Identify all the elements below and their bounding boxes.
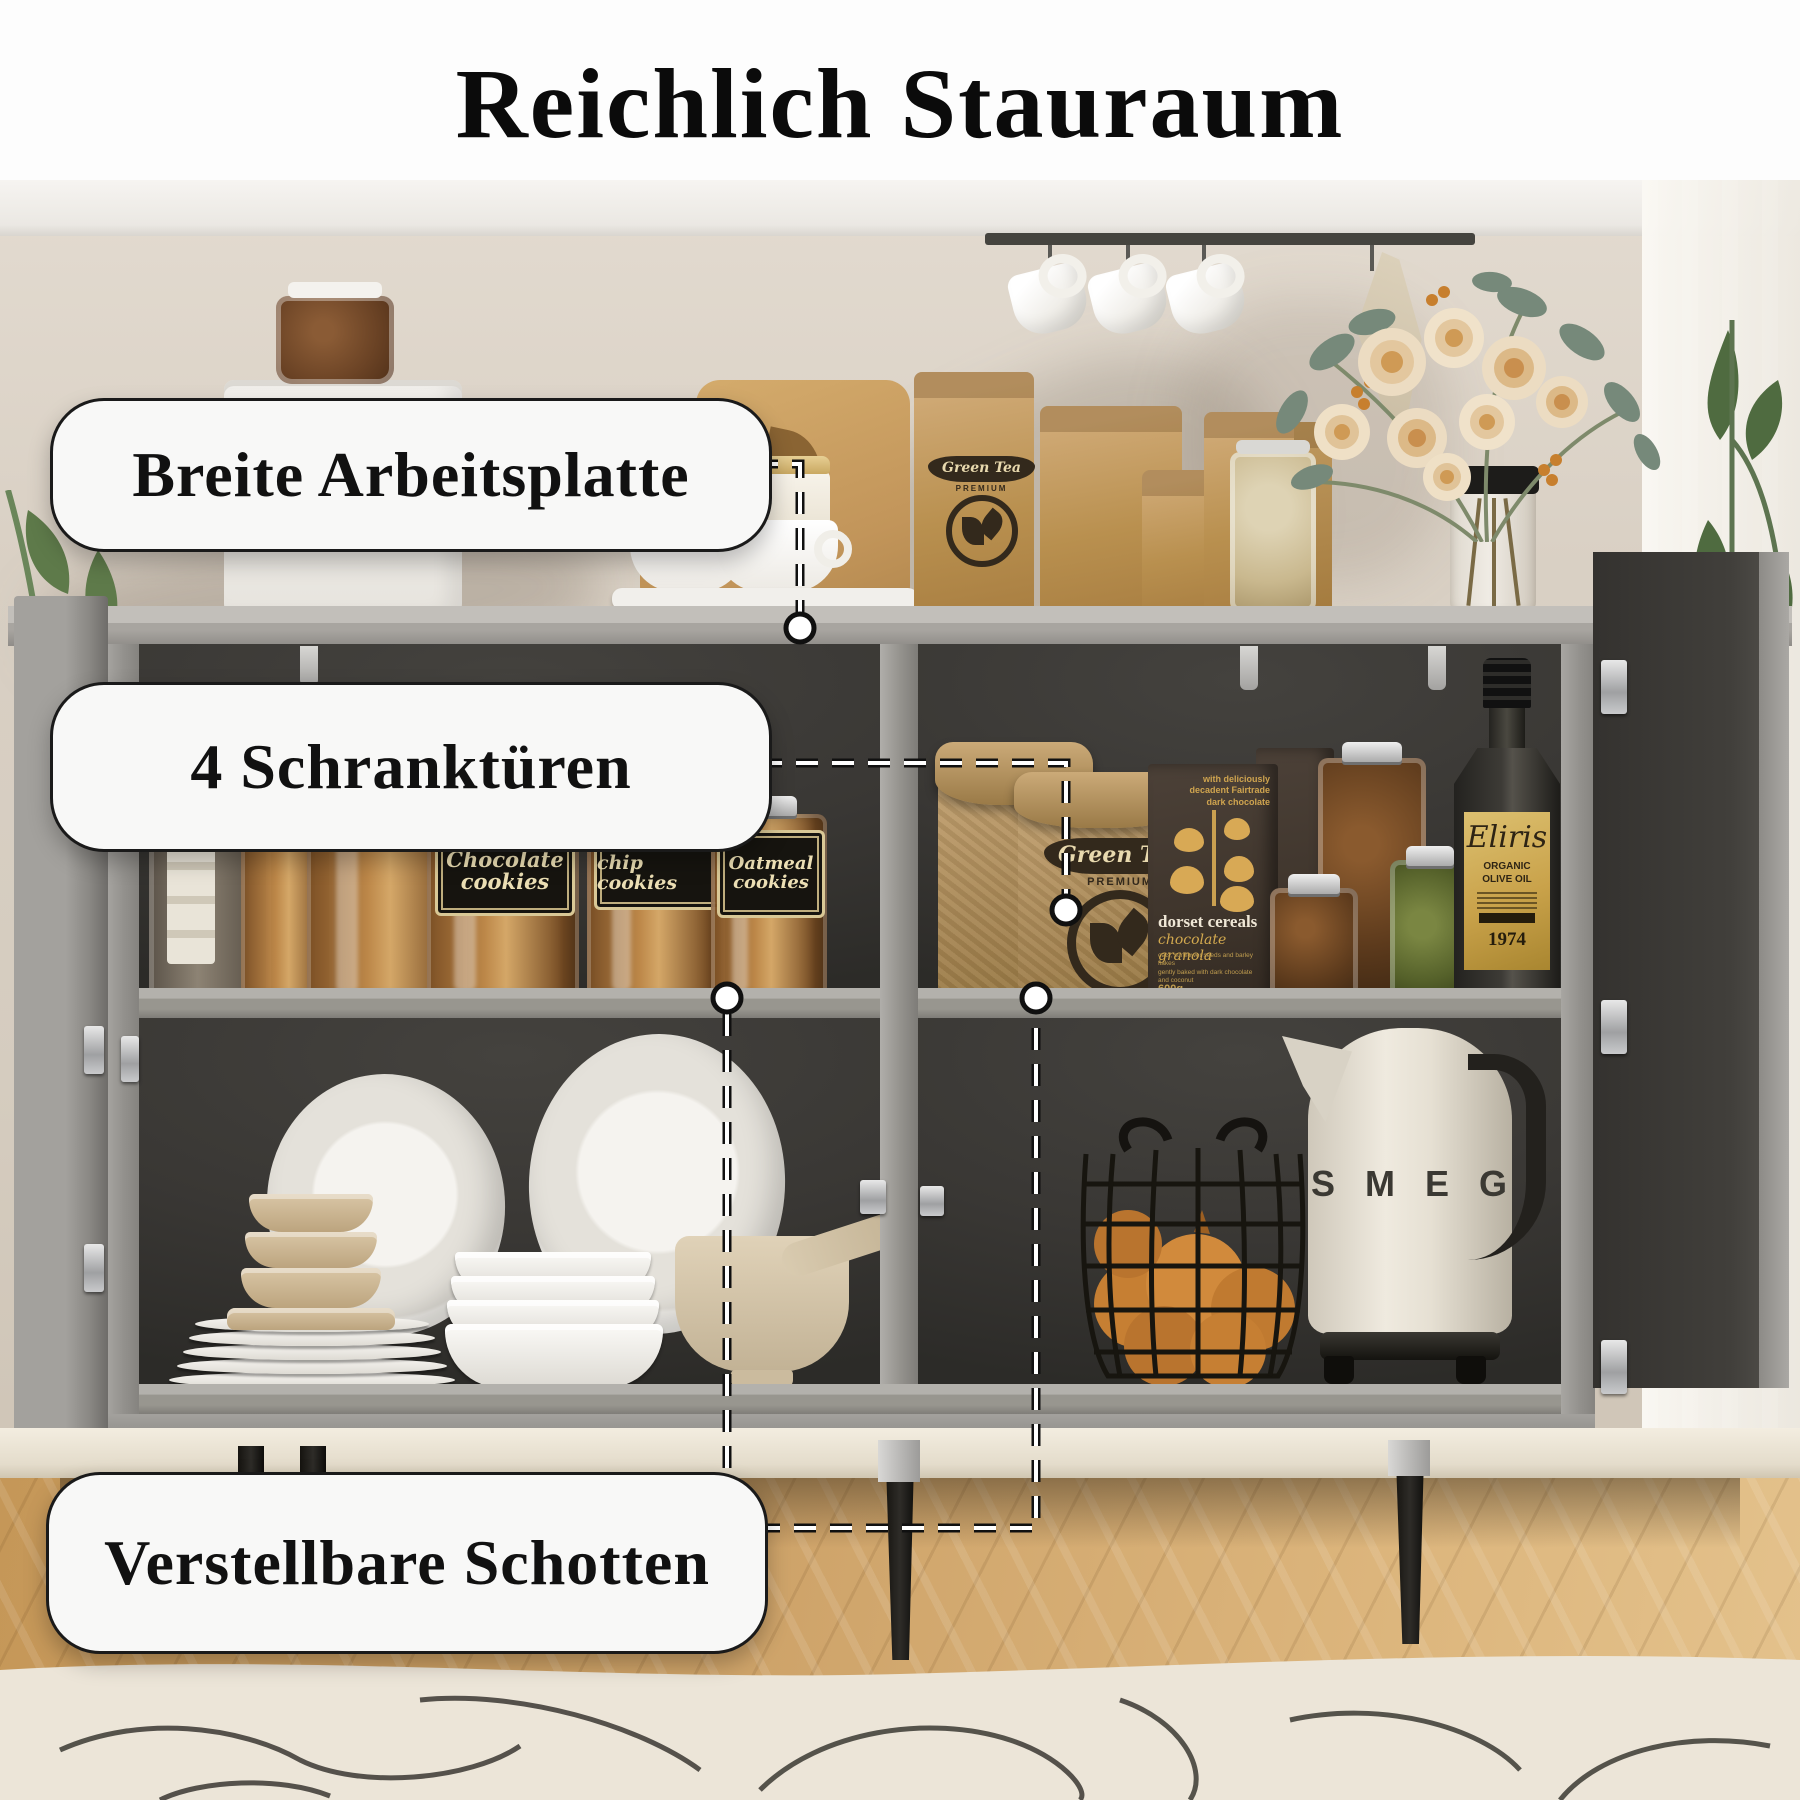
bag-fold	[1040, 406, 1182, 432]
green-tea-logo: Green Tea PREMIUM	[928, 456, 1035, 567]
tea-pouch: Green Tea PREMIUM	[914, 372, 1034, 612]
product-image: Reichlich Stauraum G	[0, 0, 1800, 1800]
upper-cabinet-band	[0, 180, 1800, 236]
tea-leaf-icon	[962, 517, 984, 545]
cereal-box-front: with deliciously decadent Fairtrade dark…	[1148, 764, 1278, 1004]
granola-stem	[1212, 810, 1216, 906]
olive-year: 1974	[1488, 929, 1526, 951]
cabinet-right-stile	[1561, 644, 1595, 1414]
jar-label-line2: chip cookies	[597, 854, 721, 894]
door-hinge	[84, 1026, 104, 1074]
cereal-brand: dorset cereals	[1158, 912, 1257, 932]
jar-label-line2: cookies	[461, 871, 550, 893]
door-hinge	[860, 1180, 886, 1214]
tea-grade: PREMIUM	[956, 484, 1008, 493]
jar-lid	[1406, 846, 1454, 866]
cereal-claim: with deliciously decadent Fairtrade dark…	[1189, 774, 1270, 808]
jar-lid	[1288, 874, 1340, 894]
jar-lid	[1342, 742, 1402, 762]
olive-type-line: OLIVE OIL	[1482, 874, 1531, 887]
compartment-upper-right: Green Tea PREMIUM with deliciously decad…	[918, 644, 1561, 1004]
door-hinge	[84, 1244, 104, 1292]
door-hinge	[1601, 660, 1627, 714]
door-hinge	[121, 1036, 139, 1082]
pouch-fold	[914, 372, 1034, 398]
compartment-lower-right: SMEG	[918, 1018, 1561, 1390]
bottle-neck	[1489, 708, 1525, 752]
annotation-worktop: Breite Arbeitsplatte	[50, 398, 772, 552]
middle-shelf	[139, 988, 1561, 1018]
oat-cluster	[1224, 818, 1250, 840]
olive-band	[1479, 913, 1535, 923]
cabinet-leg-sleeve	[878, 1440, 920, 1482]
almond-jar-small	[1270, 888, 1358, 1004]
shelf-bracket	[1428, 646, 1446, 690]
beige-plate	[227, 1308, 395, 1330]
oat-cluster	[1224, 856, 1254, 882]
olive-oil-bottle: Eliris ORGANIC OLIVE OIL 1974	[1452, 652, 1561, 1004]
door-hinge	[1601, 1000, 1627, 1054]
annotation-shelves-text: Verstellbare Schotten	[104, 1526, 710, 1600]
cabinet-leg-sleeve	[1388, 1440, 1430, 1476]
cereal-claim-line: with deliciously	[1189, 774, 1270, 785]
stacked-plate	[189, 1330, 435, 1346]
door-hinge	[1601, 1340, 1627, 1394]
compartment-lower-left	[139, 1018, 880, 1390]
shelf-bracket	[300, 646, 318, 686]
tea-grade: PREMIUM	[1087, 876, 1153, 888]
kettle-foot	[1324, 1356, 1354, 1384]
annotation-shelves: Verstellbare Schotten	[46, 1472, 768, 1654]
beige-bowl	[249, 1194, 373, 1232]
flower-bouquet	[1192, 242, 1692, 542]
cabinet-bottom-shelf	[139, 1384, 1561, 1414]
open-door-right	[1593, 552, 1789, 1388]
coffee-bean-jar	[276, 296, 394, 384]
beige-bowl	[241, 1268, 381, 1308]
tea-ribbon: Green Tea	[928, 456, 1035, 482]
tea-brand: Green Tea	[942, 460, 1021, 476]
kettle-handle	[1468, 1054, 1546, 1260]
door-hinge	[920, 1186, 944, 1216]
cereal-desc-line: gently baked with dark chocolate	[1158, 969, 1270, 977]
olive-oil-label: Eliris ORGANIC OLIVE OIL 1974	[1464, 812, 1550, 970]
kettle-spout	[1282, 1036, 1352, 1122]
cabinet-worktop	[8, 606, 1792, 646]
cabinet-divider	[880, 644, 918, 1414]
olive-type: ORGANIC OLIVE OIL	[1482, 861, 1531, 886]
cereal-desc-line: oats, sunflower seeds and barley flakes	[1158, 952, 1270, 969]
kettle-brand: SMEG	[1308, 1163, 1540, 1205]
granola-illustration	[1168, 810, 1258, 906]
cereal-claim-line: decadent Fairtrade	[1189, 785, 1270, 796]
bottle-cap	[1483, 658, 1531, 708]
oat-cluster	[1220, 886, 1254, 912]
annotation-worktop-text: Breite Arbeitsplatte	[132, 438, 689, 512]
beige-bowl-stack	[227, 1190, 395, 1330]
jar-label-line1: Chocolate	[446, 849, 563, 871]
annotation-doors-text: 4 Schranktüren	[190, 730, 631, 804]
annotation-doors: 4 Schranktüren	[50, 682, 772, 852]
tea-ring-icon	[946, 495, 1018, 567]
glass-shine	[336, 842, 358, 993]
olive-fineprint	[1477, 891, 1537, 909]
shelf-bracket	[1240, 646, 1258, 690]
stacked-plate	[177, 1358, 447, 1374]
area-rug	[0, 1630, 1800, 1800]
oat-cluster	[1170, 866, 1204, 894]
olive-type-line: ORGANIC	[1482, 861, 1531, 874]
kettle-foot	[1456, 1356, 1486, 1384]
smeg-kettle: SMEG	[1308, 1028, 1512, 1334]
olive-brand: Eliris	[1467, 820, 1547, 855]
oat-cluster	[1174, 828, 1204, 852]
cereal-desc: oats, sunflower seeds and barley flakes …	[1158, 952, 1270, 986]
bottle-body: Eliris ORGANIC OLIVE OIL 1974	[1454, 748, 1560, 1004]
white-bowl	[445, 1324, 663, 1388]
cereal-claim-line: dark chocolate	[1189, 797, 1270, 808]
door-edge	[1759, 552, 1789, 1388]
white-bowl-stack	[445, 1246, 663, 1388]
page-title: Reichlich Stauraum	[0, 46, 1800, 161]
onion-basket	[1068, 1114, 1318, 1388]
beige-bowl	[245, 1232, 377, 1268]
stacked-plate	[183, 1344, 441, 1360]
jar-label-line2: cookies	[733, 874, 809, 893]
bean-jar-lid	[288, 282, 382, 298]
